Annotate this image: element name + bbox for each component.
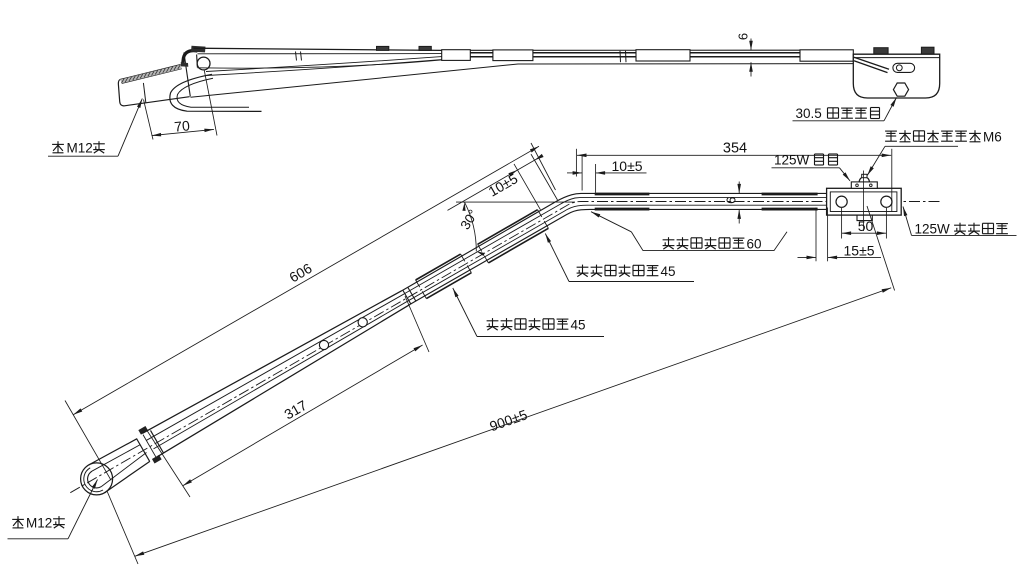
- svg-text:125W: 125W: [915, 221, 951, 236]
- svg-text:M6: M6: [983, 130, 1002, 145]
- svg-text:M12: M12: [26, 516, 52, 531]
- svg-text:15±5: 15±5: [844, 242, 875, 258]
- svg-text:6: 6: [724, 197, 739, 204]
- svg-text:70: 70: [173, 117, 190, 134]
- svg-text:10±5: 10±5: [612, 158, 643, 174]
- svg-text:354: 354: [723, 141, 747, 157]
- svg-text:125W: 125W: [774, 152, 810, 167]
- svg-text:50: 50: [858, 218, 874, 234]
- svg-text:60: 60: [747, 236, 762, 251]
- svg-text:30.5: 30.5: [796, 106, 822, 121]
- svg-text:6: 6: [736, 33, 751, 40]
- svg-text:45: 45: [571, 317, 586, 332]
- svg-text:45: 45: [661, 264, 676, 279]
- svg-text:M12: M12: [67, 141, 93, 156]
